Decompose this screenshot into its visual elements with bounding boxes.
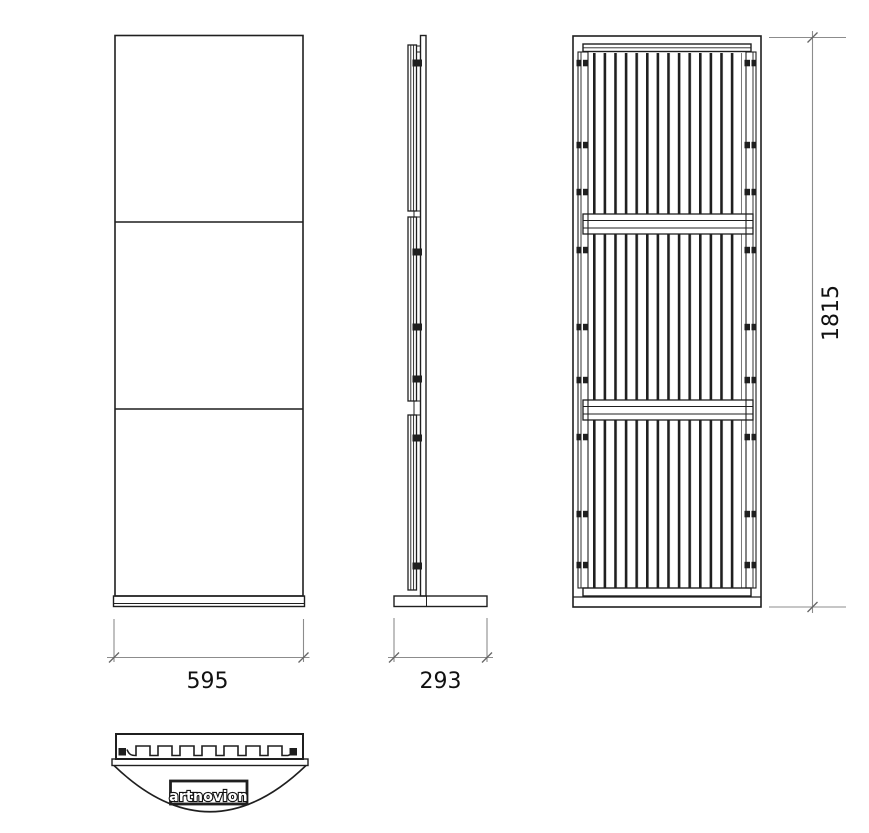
drawing-sheet: artnovion 595 293 1815 (0, 0, 869, 833)
mounting-clip (413, 563, 423, 570)
side-panel-layers-2 (411, 217, 414, 401)
brand-logo-text: artnovion (169, 789, 248, 805)
mounting-clip (577, 60, 589, 67)
dimension-overall-height: 1815 (769, 31, 846, 613)
front-view (114, 36, 305, 607)
side-foot-plate (394, 596, 487, 607)
side-panel-segment-2 (408, 217, 417, 401)
bottom-slat-profile (127, 746, 293, 756)
mounting-clip (577, 562, 589, 569)
mounting-clip (577, 377, 589, 384)
side-view (394, 36, 487, 607)
dimension-side-depth: 293 (388, 618, 493, 694)
rear-slat-area-middle (593, 235, 742, 400)
extension-lines (114, 619, 304, 662)
mounting-clip (119, 748, 127, 756)
dimension-front-width: 595 (107, 619, 310, 694)
mounting-clip (577, 247, 589, 254)
mounting-clip (745, 60, 757, 67)
mounting-clip (577, 189, 589, 196)
mounting-clip (577, 434, 589, 441)
drawing-linework: artnovion (112, 36, 761, 812)
technical-drawing-canvas: artnovion 595 293 1815 (0, 0, 869, 833)
mounting-clip (745, 142, 757, 149)
mounting-clip (745, 511, 757, 518)
mounting-clip (413, 435, 423, 442)
side-support-bar (421, 36, 427, 597)
mounting-clip (290, 748, 298, 756)
mounting-clip (745, 434, 757, 441)
rear-divider-band-2 (583, 400, 753, 420)
mounting-clip (577, 324, 589, 331)
rear-bottom-rail (583, 588, 751, 596)
mounting-clip (745, 247, 757, 254)
side-joint-stub-2 (414, 401, 421, 415)
mounting-clip (577, 142, 589, 149)
mounting-clip (413, 324, 423, 331)
dimension-label-front-width: 595 (187, 669, 229, 694)
bottom-clips (119, 748, 298, 756)
mounting-clip (413, 249, 423, 256)
mounting-clip (413, 376, 423, 383)
rear-right-rail (746, 52, 756, 588)
mounting-clip (745, 324, 757, 331)
rear-left-rail (578, 52, 588, 588)
rear-view (573, 36, 761, 607)
rear-divider-band-2-lines (583, 407, 753, 415)
mounting-clip (745, 377, 757, 384)
front-base-plate (114, 596, 305, 607)
rear-divider-band-1 (583, 214, 753, 234)
mounting-clip (577, 511, 589, 518)
front-panel-outline (115, 36, 303, 597)
rear-slat-area-bottom (593, 421, 742, 588)
side-panel-layers-1 (411, 45, 414, 211)
side-panel-segment-1 (408, 45, 417, 211)
dimension-label-side-depth: 293 (420, 669, 462, 694)
rear-slat-area-top (593, 53, 742, 214)
rear-divider-band-1-lines (583, 221, 753, 229)
extension-lines (394, 618, 487, 662)
dimension-label-overall-height: 1815 (819, 285, 844, 341)
bottom-view: artnovion (112, 734, 308, 812)
mounting-clip (413, 60, 423, 67)
side-joint-stub-1 (414, 211, 421, 217)
mounting-clip (745, 189, 757, 196)
mounting-clip (745, 562, 757, 569)
